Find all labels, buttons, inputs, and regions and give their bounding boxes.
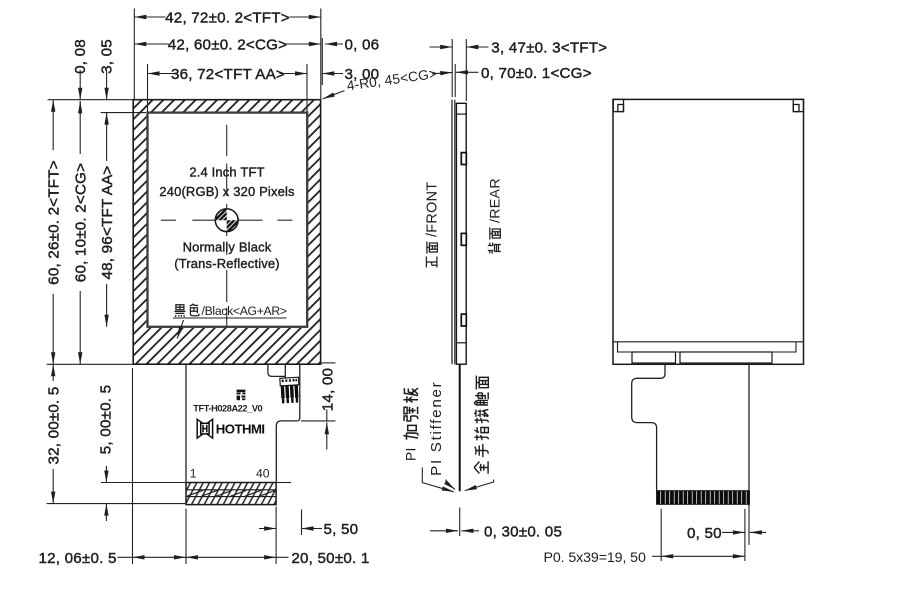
svg-text:240(RGB) x 320 Pixels: 240(RGB) x 320 Pixels bbox=[159, 184, 295, 199]
svg-text:0, 50: 0, 50 bbox=[687, 525, 722, 542]
svg-text:PI Stiffener: PI Stiffener bbox=[428, 381, 445, 476]
svg-text:3, 47±0. 3<TFT>: 3, 47±0. 3<TFT> bbox=[491, 40, 607, 57]
svg-text:60, 10±0. 2<CG>: 60, 10±0. 2<CG> bbox=[73, 163, 90, 282]
svg-text:40: 40 bbox=[256, 467, 270, 481]
svg-text:0, 70±0. 1<CG>: 0, 70±0. 1<CG> bbox=[481, 65, 592, 82]
svg-text:/FRONT: /FRONT bbox=[424, 182, 440, 237]
svg-text:0, 08: 0, 08 bbox=[72, 39, 89, 74]
svg-text:3, 05: 3, 05 bbox=[98, 39, 115, 74]
svg-text:12, 06±0. 5: 12, 06±0. 5 bbox=[39, 550, 117, 567]
svg-text:1: 1 bbox=[190, 467, 197, 481]
svg-text:Normally Black: Normally Black bbox=[183, 240, 272, 255]
svg-text:48, 96<TFT AA>: 48, 96<TFT AA> bbox=[99, 166, 116, 280]
svg-text:HOTHMI: HOTHMI bbox=[216, 422, 265, 437]
svg-text:42, 72±0. 2<TFT>: 42, 72±0. 2<TFT> bbox=[165, 10, 290, 27]
svg-text:32, 00±0. 5: 32, 00±0. 5 bbox=[46, 386, 63, 464]
svg-text:(Trans-Reflective): (Trans-Reflective) bbox=[174, 256, 280, 271]
svg-text:/Black<AG+AR>: /Black<AG+AR> bbox=[202, 304, 287, 318]
svg-text:PI: PI bbox=[404, 447, 419, 461]
svg-text:36, 72<TFT AA>: 36, 72<TFT AA> bbox=[171, 66, 285, 83]
svg-text:42, 60±0. 2<CG>: 42, 60±0. 2<CG> bbox=[168, 37, 287, 54]
svg-text:20, 50±0. 1: 20, 50±0. 1 bbox=[291, 550, 369, 567]
svg-text:60, 26±0. 2<TFT>: 60, 26±0. 2<TFT> bbox=[46, 160, 63, 285]
svg-text:P0. 5x39=19, 50: P0. 5x39=19, 50 bbox=[544, 550, 646, 566]
svg-text:2.4 Inch TFT: 2.4 Inch TFT bbox=[189, 165, 264, 180]
svg-text:/REAR: /REAR bbox=[487, 178, 503, 223]
svg-text:14, 00: 14, 00 bbox=[319, 368, 336, 411]
svg-text:TFT-H028A22_V0: TFT-H028A22_V0 bbox=[193, 403, 262, 413]
svg-text:0, 06: 0, 06 bbox=[345, 37, 380, 54]
svg-text:5, 00±0. 5: 5, 00±0. 5 bbox=[97, 385, 114, 454]
svg-text:5, 50: 5, 50 bbox=[324, 521, 359, 538]
svg-text:0, 30±0. 05: 0, 30±0. 05 bbox=[484, 523, 562, 540]
